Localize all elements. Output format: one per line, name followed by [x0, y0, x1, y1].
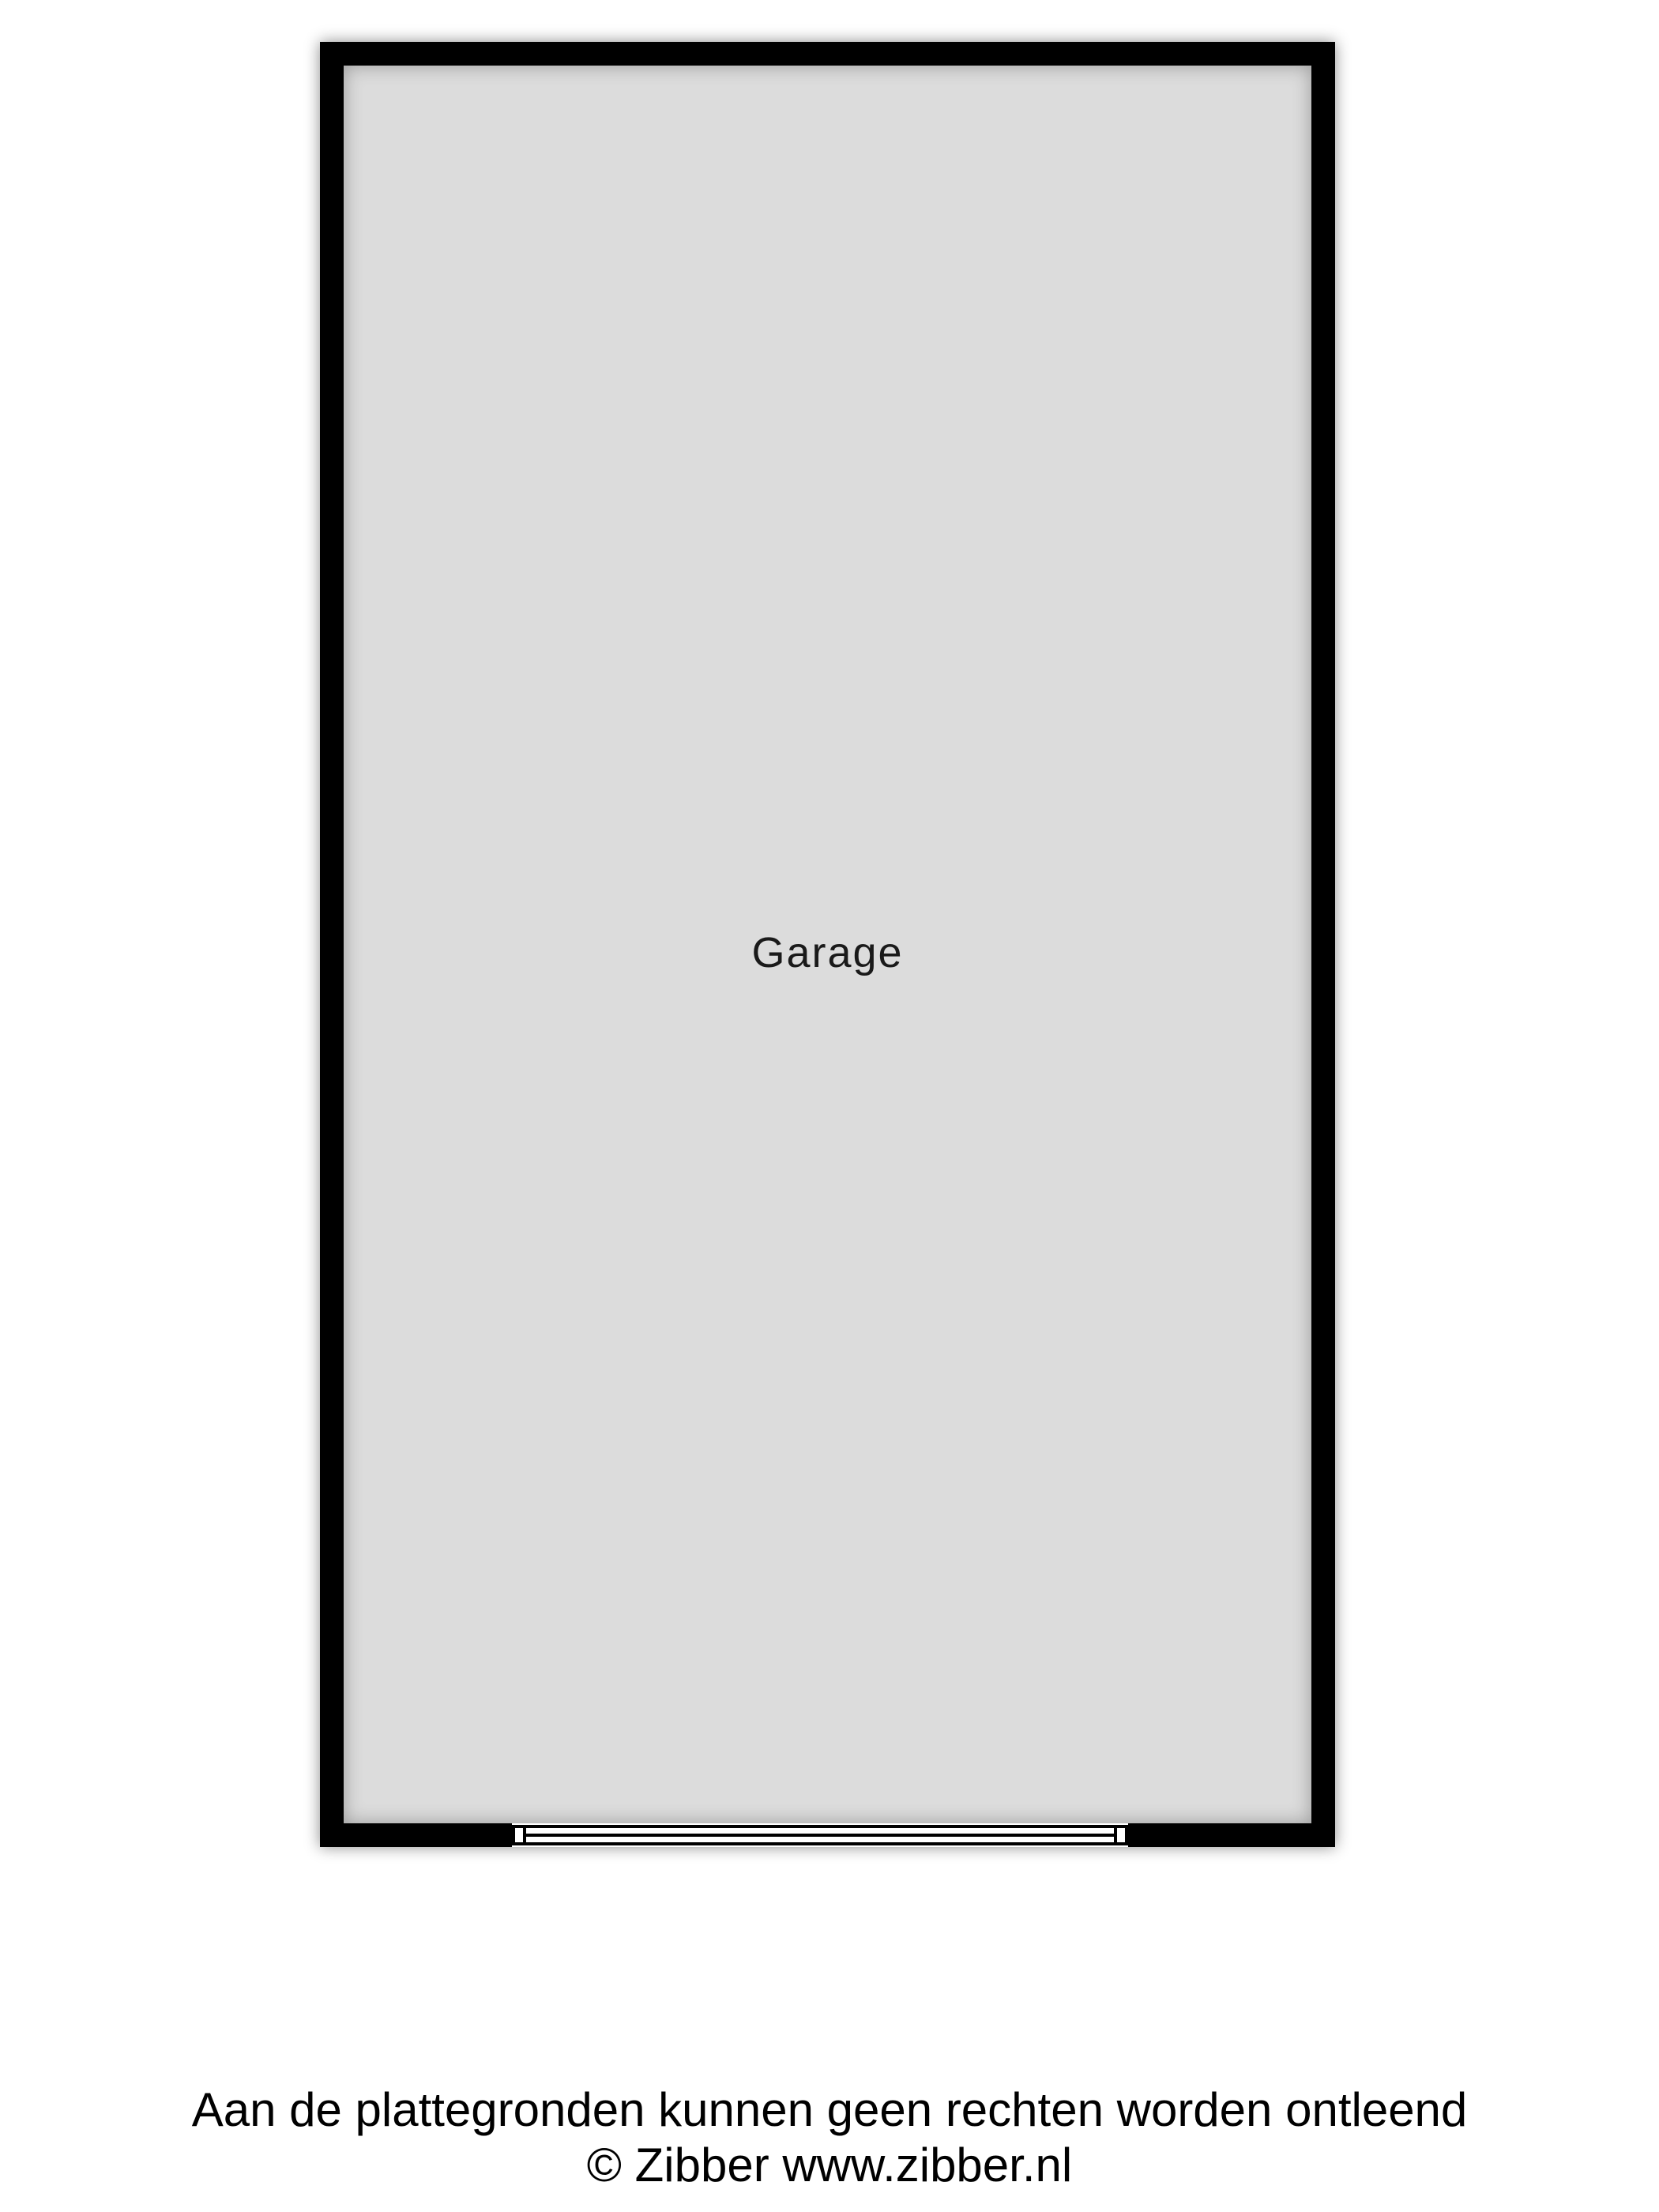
copyright-text: © Zibber www.zibber.nl	[0, 2138, 1659, 2193]
door-panel-line	[526, 1834, 1114, 1837]
garage-door-icon	[512, 1825, 1128, 1845]
floorplan-canvas: Garage	[320, 42, 1335, 1847]
disclaimer-text: Aan de plattegronden kunnen geen rechten…	[0, 2082, 1659, 2138]
footer: Aan de plattegronden kunnen geen rechten…	[0, 2082, 1659, 2193]
door-opening	[512, 1823, 1128, 1847]
door-jamb-right	[1114, 1828, 1117, 1842]
room-label-garage: Garage	[320, 928, 1335, 977]
floorplan-page: Garage Aan de plattegronden kunnen geen …	[0, 0, 1659, 2212]
